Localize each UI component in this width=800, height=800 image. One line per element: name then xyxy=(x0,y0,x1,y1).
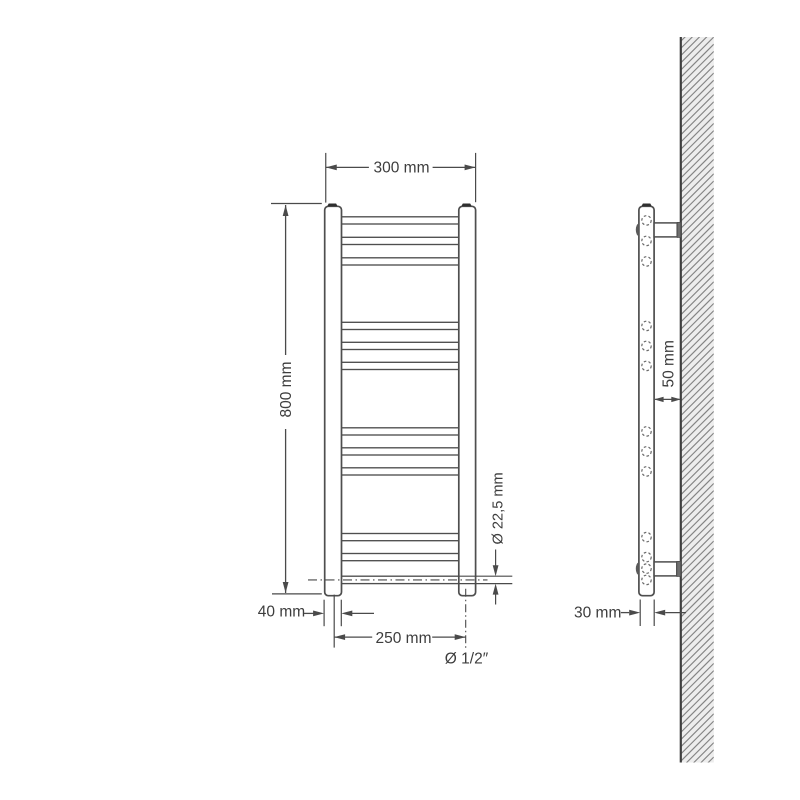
svg-text:250 mm: 250 mm xyxy=(376,630,432,647)
svg-text:Ø 22,5 mm: Ø 22,5 mm xyxy=(490,472,506,544)
svg-text:30 mm: 30 mm xyxy=(574,605,621,622)
svg-text:800 mm: 800 mm xyxy=(278,362,295,418)
svg-text:Ø 1/2″: Ø 1/2″ xyxy=(445,650,489,667)
svg-text:300 mm: 300 mm xyxy=(374,159,430,176)
svg-text:40 mm: 40 mm xyxy=(258,603,305,620)
svg-text:50 mm: 50 mm xyxy=(660,340,677,387)
